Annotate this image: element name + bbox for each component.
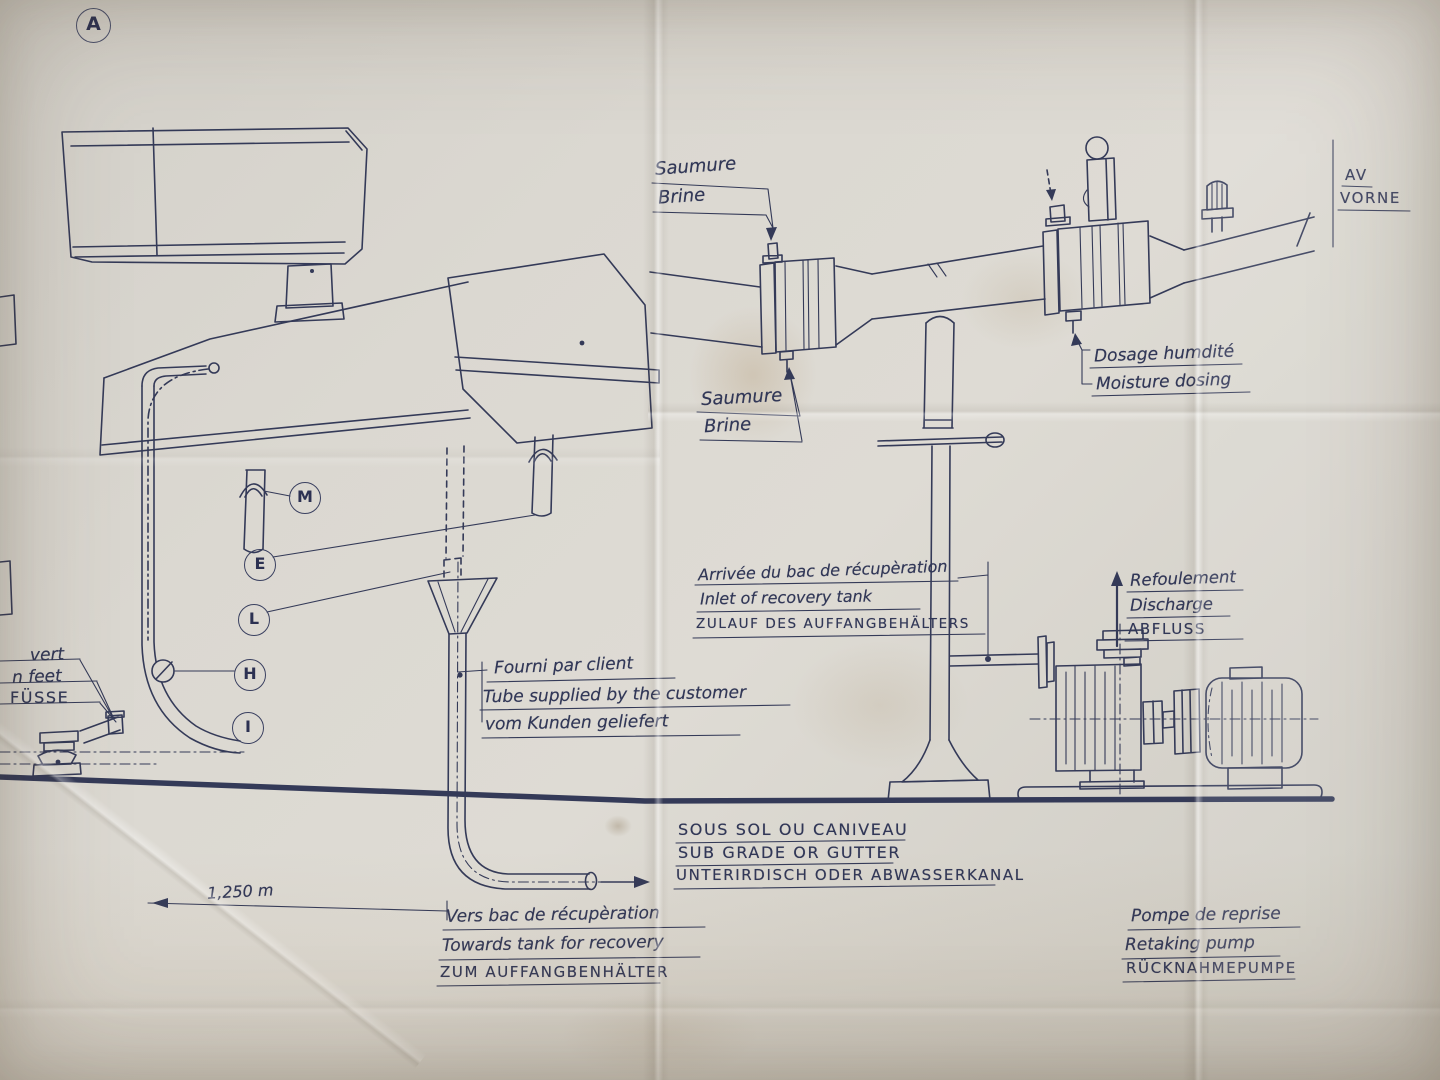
feet-leaders xyxy=(0,659,116,722)
callout-e: E xyxy=(244,549,276,581)
label-retaking-pump-en: Retaking pump xyxy=(1125,933,1255,955)
customer-tube-underlines xyxy=(458,662,790,738)
stain xyxy=(604,815,632,837)
callout-h: H xyxy=(234,659,266,691)
label-recovery-inlet-de: ZULAUF DES AUFFANGBEHÄLTERS xyxy=(696,616,970,632)
drain-tube-1 xyxy=(240,470,267,553)
hopper xyxy=(62,128,367,264)
outlet-pipe-right xyxy=(1184,140,1333,283)
pipe-head-to-coupling1 xyxy=(650,272,762,347)
callout-i-label: I xyxy=(245,717,251,736)
callout-leaders xyxy=(175,491,535,671)
dosing-coupling xyxy=(1043,137,1184,333)
brine-coupling xyxy=(760,243,872,372)
pipe-between-couplings xyxy=(872,246,1045,319)
label-feet-en: n feet xyxy=(12,666,62,688)
label-dosage-en: Moisture dosing xyxy=(1096,370,1232,395)
callout-m: M xyxy=(289,482,321,514)
label-discharge-en: Discharge xyxy=(1130,594,1213,614)
horizontal-fold-1 xyxy=(648,402,1440,422)
section-marker-a-label: A xyxy=(86,13,101,35)
hopper-pedestal xyxy=(275,264,344,322)
drain-tube-2 xyxy=(529,435,557,516)
machine-bed xyxy=(100,282,470,640)
callout-l-label: L xyxy=(249,609,259,628)
stain xyxy=(560,990,760,1080)
brine-top-leader xyxy=(652,183,777,241)
paper-folds xyxy=(0,0,1440,1080)
label-discharge-fr: Refoulement xyxy=(1130,567,1236,590)
label-subgrade-en: SUB GRADE OR GUTTER xyxy=(678,843,901,862)
label-front-fr: AV xyxy=(1345,166,1368,184)
label-subgrade-fr: SOUS SOL OU CANIVEAU xyxy=(678,820,908,839)
label-recovery-inlet-en: Inlet of recovery tank xyxy=(700,587,872,609)
label-towards-recovery-en: Towards tank for recovery xyxy=(442,932,664,956)
stain xyxy=(960,250,1090,350)
retaking-pump-underlines xyxy=(1122,927,1300,982)
label-discharge-de: ABFLUSS xyxy=(1128,620,1206,638)
dimension-line xyxy=(148,898,447,920)
stain xyxy=(790,640,970,770)
brine-mid-leader xyxy=(697,367,802,442)
fold-light-panel xyxy=(1196,0,1440,1080)
machine-foot xyxy=(33,711,124,776)
label-recovery-inlet-fr: Arrivée du bac de récupèration xyxy=(698,557,948,585)
paper-stains xyxy=(0,0,1440,1080)
discharge-arrow xyxy=(1111,571,1123,646)
vertical-fold-2 xyxy=(1183,0,1209,1080)
callout-m-label: M xyxy=(297,487,313,506)
stain xyxy=(688,305,818,445)
label-feet-de: FÜSSE xyxy=(10,688,69,707)
label-towards-recovery-fr: Vers bac de récupèration xyxy=(446,903,660,927)
edge-fragments xyxy=(0,295,16,615)
dosage-leader xyxy=(1071,333,1250,396)
label-subgrade-de: UNTERIRDISCH ODER ABWASSERKANAL xyxy=(676,866,1025,884)
label-customer-tube-de: vom Kunden geliefert xyxy=(485,711,669,734)
machine-head xyxy=(448,254,659,443)
bottom-warm-shading xyxy=(0,850,1440,1080)
diagonal-fold xyxy=(0,710,426,1069)
blueprint-linework xyxy=(0,0,1440,1080)
inlet-bracket-pipe xyxy=(950,562,1038,666)
annotations: A Saumure Brine AV VORNE Dosage humdité … xyxy=(0,0,1440,1080)
subgrade-underlines xyxy=(674,840,995,889)
discharge-underlines xyxy=(1125,590,1243,641)
label-dimension: 1,250 m xyxy=(207,880,274,902)
callout-h-label: H xyxy=(243,664,256,683)
towards-recovery-underlines xyxy=(437,927,705,986)
label-towards-recovery-de: ZUM AUFFANGBENHÄLTER xyxy=(440,963,669,981)
label-retaking-pump-fr: Pompe de reprise xyxy=(1131,904,1281,927)
vertical-fold-1 xyxy=(643,0,669,1080)
front-marker-underlines xyxy=(1338,186,1410,211)
horizontal-fold-3 xyxy=(0,998,1440,1018)
label-brine-top-en: Brine xyxy=(657,184,706,208)
callout-l: L xyxy=(238,604,270,636)
label-brine-mid-en: Brine xyxy=(703,414,751,437)
funnel-and-tube xyxy=(428,446,650,890)
recovery-inlet-underlines xyxy=(693,581,985,638)
ground-line xyxy=(0,777,1332,801)
blueprint-photo: { "palette": { "paper": "#d9d6cf", "ink"… xyxy=(0,0,1440,1080)
gauge-pipe xyxy=(0,366,244,764)
label-customer-tube-fr: Fourni par client xyxy=(494,654,634,679)
callout-e-label: E xyxy=(255,554,266,573)
label-front-de: VORNE xyxy=(1340,189,1401,207)
photo-vignette xyxy=(0,0,1440,1080)
label-customer-tube-en: Tube supplied by the customer xyxy=(483,683,746,708)
support-stand xyxy=(878,317,1004,802)
callout-i: I xyxy=(232,712,264,744)
label-feet-fr: vert xyxy=(30,644,65,665)
section-marker-a: A xyxy=(76,8,111,43)
horizontal-fold-2 xyxy=(0,447,660,467)
label-retaking-pump-de: RÜCKNAHMEPUMPE xyxy=(1126,959,1297,977)
retaking-pump xyxy=(1018,624,1322,801)
label-brine-mid-fr: Saumure xyxy=(701,385,783,410)
label-brine-top-fr: Saumure xyxy=(654,153,737,180)
label-dosage-fr: Dosage humdité xyxy=(1094,342,1235,367)
